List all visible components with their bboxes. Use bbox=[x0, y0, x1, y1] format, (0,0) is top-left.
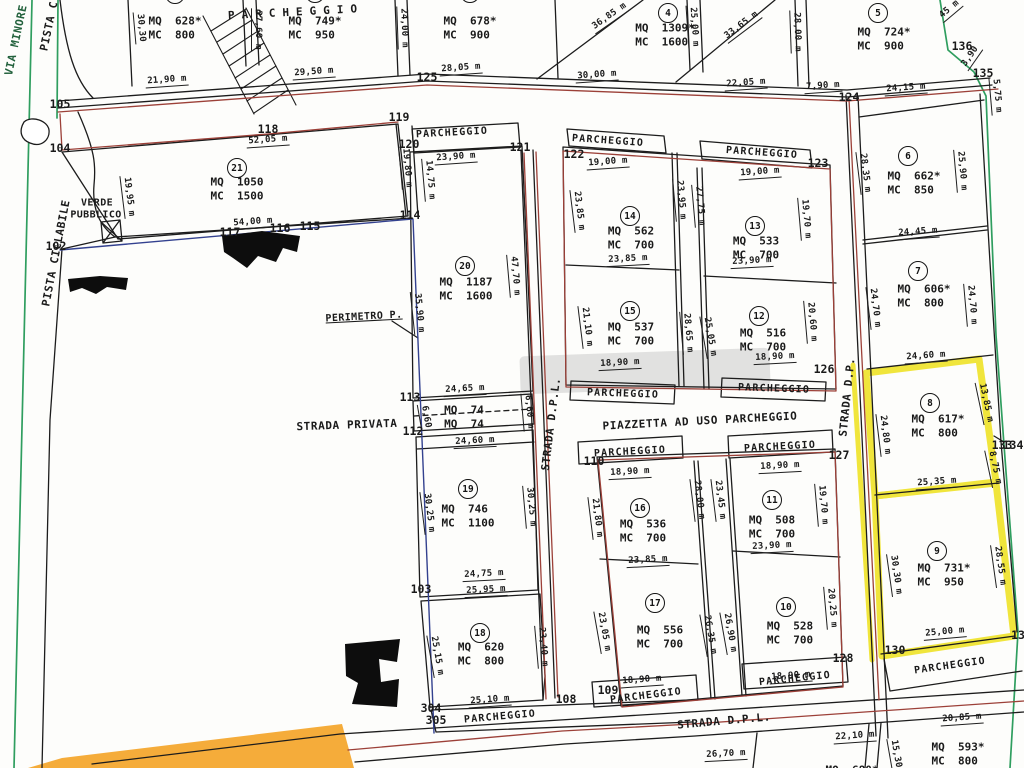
point-marker-122: 122 bbox=[564, 147, 585, 161]
parcel-mq: MQ 1050 bbox=[211, 176, 264, 190]
parcel-mc: MC 700 bbox=[620, 531, 666, 545]
dimension-label: 23,90 m bbox=[750, 540, 794, 554]
parcel-label-14: MQ 562MC 700 bbox=[608, 225, 654, 252]
highlight-orange-road bbox=[28, 724, 354, 768]
point-marker-115: 115 bbox=[300, 219, 321, 233]
parcel-mc: MQ 74 bbox=[444, 417, 484, 431]
parcel-mq: MQ 1309* bbox=[635, 22, 695, 36]
parcel-label-16: MQ 536MC 700 bbox=[620, 518, 666, 545]
lot-number-16: 16 bbox=[630, 498, 650, 518]
parcel-mc: MC 1600 bbox=[440, 289, 493, 303]
parcel-mc: MC 800 bbox=[458, 654, 504, 668]
point-marker-123: 123 bbox=[808, 156, 829, 170]
parcel-mq: MQ 617* bbox=[912, 413, 965, 427]
parcel-mq: MQ 556 bbox=[637, 624, 683, 638]
parcel-mc: MC 700 bbox=[608, 334, 654, 348]
lot-number-8: 8 bbox=[920, 393, 940, 413]
point-marker-104: 104 bbox=[50, 141, 71, 155]
lot-number-6: 6 bbox=[898, 146, 918, 166]
dimension-label: 18,90 m bbox=[598, 357, 642, 371]
parcel-label-13: MQ 533MC 700 bbox=[733, 235, 779, 262]
lot-number-5: 5 bbox=[868, 3, 888, 23]
parcel-mq: MQ 749* bbox=[289, 15, 342, 29]
parcel-label-4: MQ 1309*MC 1600 bbox=[635, 22, 695, 49]
area-label: PUBBLICO bbox=[70, 210, 121, 221]
point-marker-305: 305 bbox=[426, 713, 447, 727]
point-marker-109: 109 bbox=[598, 683, 619, 697]
parcel-mc: MC 700 bbox=[608, 238, 654, 252]
lot-number-12: 12 bbox=[749, 306, 769, 326]
parcel-mc: MC 800 bbox=[932, 754, 985, 768]
parcel-label-7: MQ 606*MC 800 bbox=[898, 283, 951, 310]
parcel-label: MQ 749*MC 950 bbox=[289, 15, 342, 42]
parcel-mc: MC 700 bbox=[637, 637, 683, 651]
plan-linework bbox=[0, 0, 1024, 768]
dimension-label: 26,70 m bbox=[704, 748, 748, 762]
dimension-label: 27,60 m bbox=[251, 8, 263, 51]
parcel-label: MQ 628*MC 800 bbox=[149, 15, 202, 42]
dimension-label: 23,85 m bbox=[626, 554, 670, 568]
dimension-label: 24,75 m bbox=[462, 568, 506, 582]
dimension-label: 24,65 m bbox=[443, 383, 487, 397]
parcel-mq: MQ 620 bbox=[458, 641, 504, 655]
parcel-mq: MQ 508 bbox=[749, 514, 795, 528]
lot-number-15: 15 bbox=[620, 301, 640, 321]
parcel-mq: MQ 536 bbox=[620, 518, 666, 532]
parcel-mc: MC 900 bbox=[858, 39, 911, 53]
parcel-mq: MQ 533 bbox=[733, 235, 779, 249]
building-footprints bbox=[68, 231, 400, 707]
point-marker-126: 126 bbox=[814, 362, 835, 376]
dimension-label: 18,90 m bbox=[608, 466, 652, 480]
parcel-mq: MQ 731* bbox=[918, 562, 971, 576]
parcel-label-21: MQ 1050MC 1500 bbox=[211, 176, 264, 203]
parcel-label-5: MQ 724*MC 900 bbox=[858, 26, 911, 53]
lot-number-7: 7 bbox=[908, 261, 928, 281]
point-marker-134: 134 bbox=[1003, 438, 1024, 452]
parcel-mq: MQ 724* bbox=[858, 26, 911, 40]
point-marker-127: 127 bbox=[829, 448, 850, 462]
point-marker-130: 130 bbox=[885, 643, 906, 657]
dimension-label: 28,00 m bbox=[789, 10, 803, 54]
parcel-mc: MC 950 bbox=[918, 575, 971, 589]
parcel-mq: MQ 606* bbox=[898, 283, 951, 297]
point-marker-103: 103 bbox=[411, 582, 432, 596]
point-marker-108: 108 bbox=[556, 692, 577, 706]
lot-number-10: 10 bbox=[776, 597, 796, 617]
point-marker-105: 105 bbox=[50, 97, 71, 111]
point-marker-121: 121 bbox=[510, 140, 531, 154]
lot-number-11: 11 bbox=[762, 490, 782, 510]
parcel-mq: MQ 537 bbox=[608, 321, 654, 335]
point-marker-124: 124 bbox=[839, 90, 860, 104]
parcel-mq: MQ 746 bbox=[442, 503, 495, 517]
parcel-mq: MQ 680* bbox=[826, 763, 879, 768]
parcel-mc: MC 700 bbox=[733, 248, 779, 262]
point-marker-119: 119 bbox=[389, 110, 410, 124]
parcel-label: MQ 680* bbox=[826, 763, 879, 768]
parcel-label-8: MQ 617*MC 800 bbox=[912, 413, 965, 440]
parcel-mc: MC 700 bbox=[767, 633, 813, 647]
point-marker-102: 102 bbox=[46, 239, 67, 253]
lot-number-20: 20 bbox=[455, 256, 475, 276]
parcel-mq: MQ 562 bbox=[608, 225, 654, 239]
parcel-mc: MC 800 bbox=[912, 426, 965, 440]
dimension-label: 24,00 m bbox=[396, 6, 410, 50]
point-marker-13: 13 bbox=[1011, 628, 1024, 642]
parcel-mc: MC 700 bbox=[749, 527, 795, 541]
lot-number-19: 19 bbox=[458, 479, 478, 499]
parcel-mq: MQ 628* bbox=[149, 15, 202, 29]
parcel-mc: MC 700 bbox=[740, 340, 786, 354]
cadastral-plan: VIA MINOREPISTA CPISTA CICLABILESTRADA P… bbox=[0, 0, 1024, 768]
parcel-mq: MQ 678* bbox=[444, 15, 497, 29]
parcel-label-6: MQ 662*MC 850 bbox=[888, 170, 941, 197]
point-marker-113: 113 bbox=[400, 390, 421, 404]
parcel-mq: MQ 593* bbox=[932, 741, 985, 755]
dimension-label: 24,60 m bbox=[453, 435, 497, 449]
dimension-label: 18,90 m bbox=[758, 460, 802, 474]
parcel-mc: MC 1500 bbox=[211, 189, 264, 203]
parcel-label-18: MQ 620MC 800 bbox=[458, 641, 504, 668]
parcel-label-20: MQ 1187MC 1600 bbox=[440, 276, 493, 303]
parcel-label: MQ 678*MC 900 bbox=[444, 15, 497, 42]
parcel-mq: MQ 662* bbox=[888, 170, 941, 184]
parcel-label-19: MQ 746MC 1100 bbox=[442, 503, 495, 530]
parcel-mc: MC 850 bbox=[888, 183, 941, 197]
lot-number-4: 4 bbox=[658, 3, 678, 23]
parcel-mc: MC 800 bbox=[898, 296, 951, 310]
lot-number-14: 14 bbox=[620, 206, 640, 226]
parcel-label: MQ 593*MC 800 bbox=[932, 741, 985, 768]
parcel-label: MQ 74MQ 74 bbox=[444, 404, 484, 431]
lot-number-17: 17 bbox=[645, 593, 665, 613]
parcel-label-12: MQ 516MC 700 bbox=[740, 327, 786, 354]
parcel-label-17: MQ 556MC 700 bbox=[637, 624, 683, 651]
parcel-label-10: MQ 528MC 700 bbox=[767, 620, 813, 647]
point-marker-125: 125 bbox=[417, 70, 438, 84]
parcel-label-11: MQ 508MC 700 bbox=[749, 514, 795, 541]
parcel-mq: MQ 74 bbox=[444, 404, 484, 418]
parcel-mc: MC 1100 bbox=[442, 516, 495, 530]
point-marker-110: 110 bbox=[584, 454, 605, 468]
point-marker-128: 128 bbox=[833, 651, 854, 665]
lot-number-9: 9 bbox=[927, 541, 947, 561]
parcel-mc: MC 800 bbox=[149, 28, 202, 42]
area-label: VERDE bbox=[81, 198, 113, 209]
dimension-label: 25,95 m bbox=[464, 584, 508, 598]
parcel-mq: MQ 1187 bbox=[440, 276, 493, 290]
parcel-label-9: MQ 731*MC 950 bbox=[918, 562, 971, 589]
parcel-mc: MC 1600 bbox=[635, 35, 695, 49]
parcel-mc: MC 950 bbox=[289, 28, 342, 42]
dimension-label: 23,85 m bbox=[606, 253, 650, 267]
parcel-label-15: MQ 537MC 700 bbox=[608, 321, 654, 348]
lot-number-13: 13 bbox=[745, 216, 765, 236]
parcel-mq: MQ 528 bbox=[767, 620, 813, 634]
parcel-mq: MQ 516 bbox=[740, 327, 786, 341]
parcel-mc: MC 900 bbox=[444, 28, 497, 42]
point-marker-114: 114 bbox=[400, 208, 421, 222]
